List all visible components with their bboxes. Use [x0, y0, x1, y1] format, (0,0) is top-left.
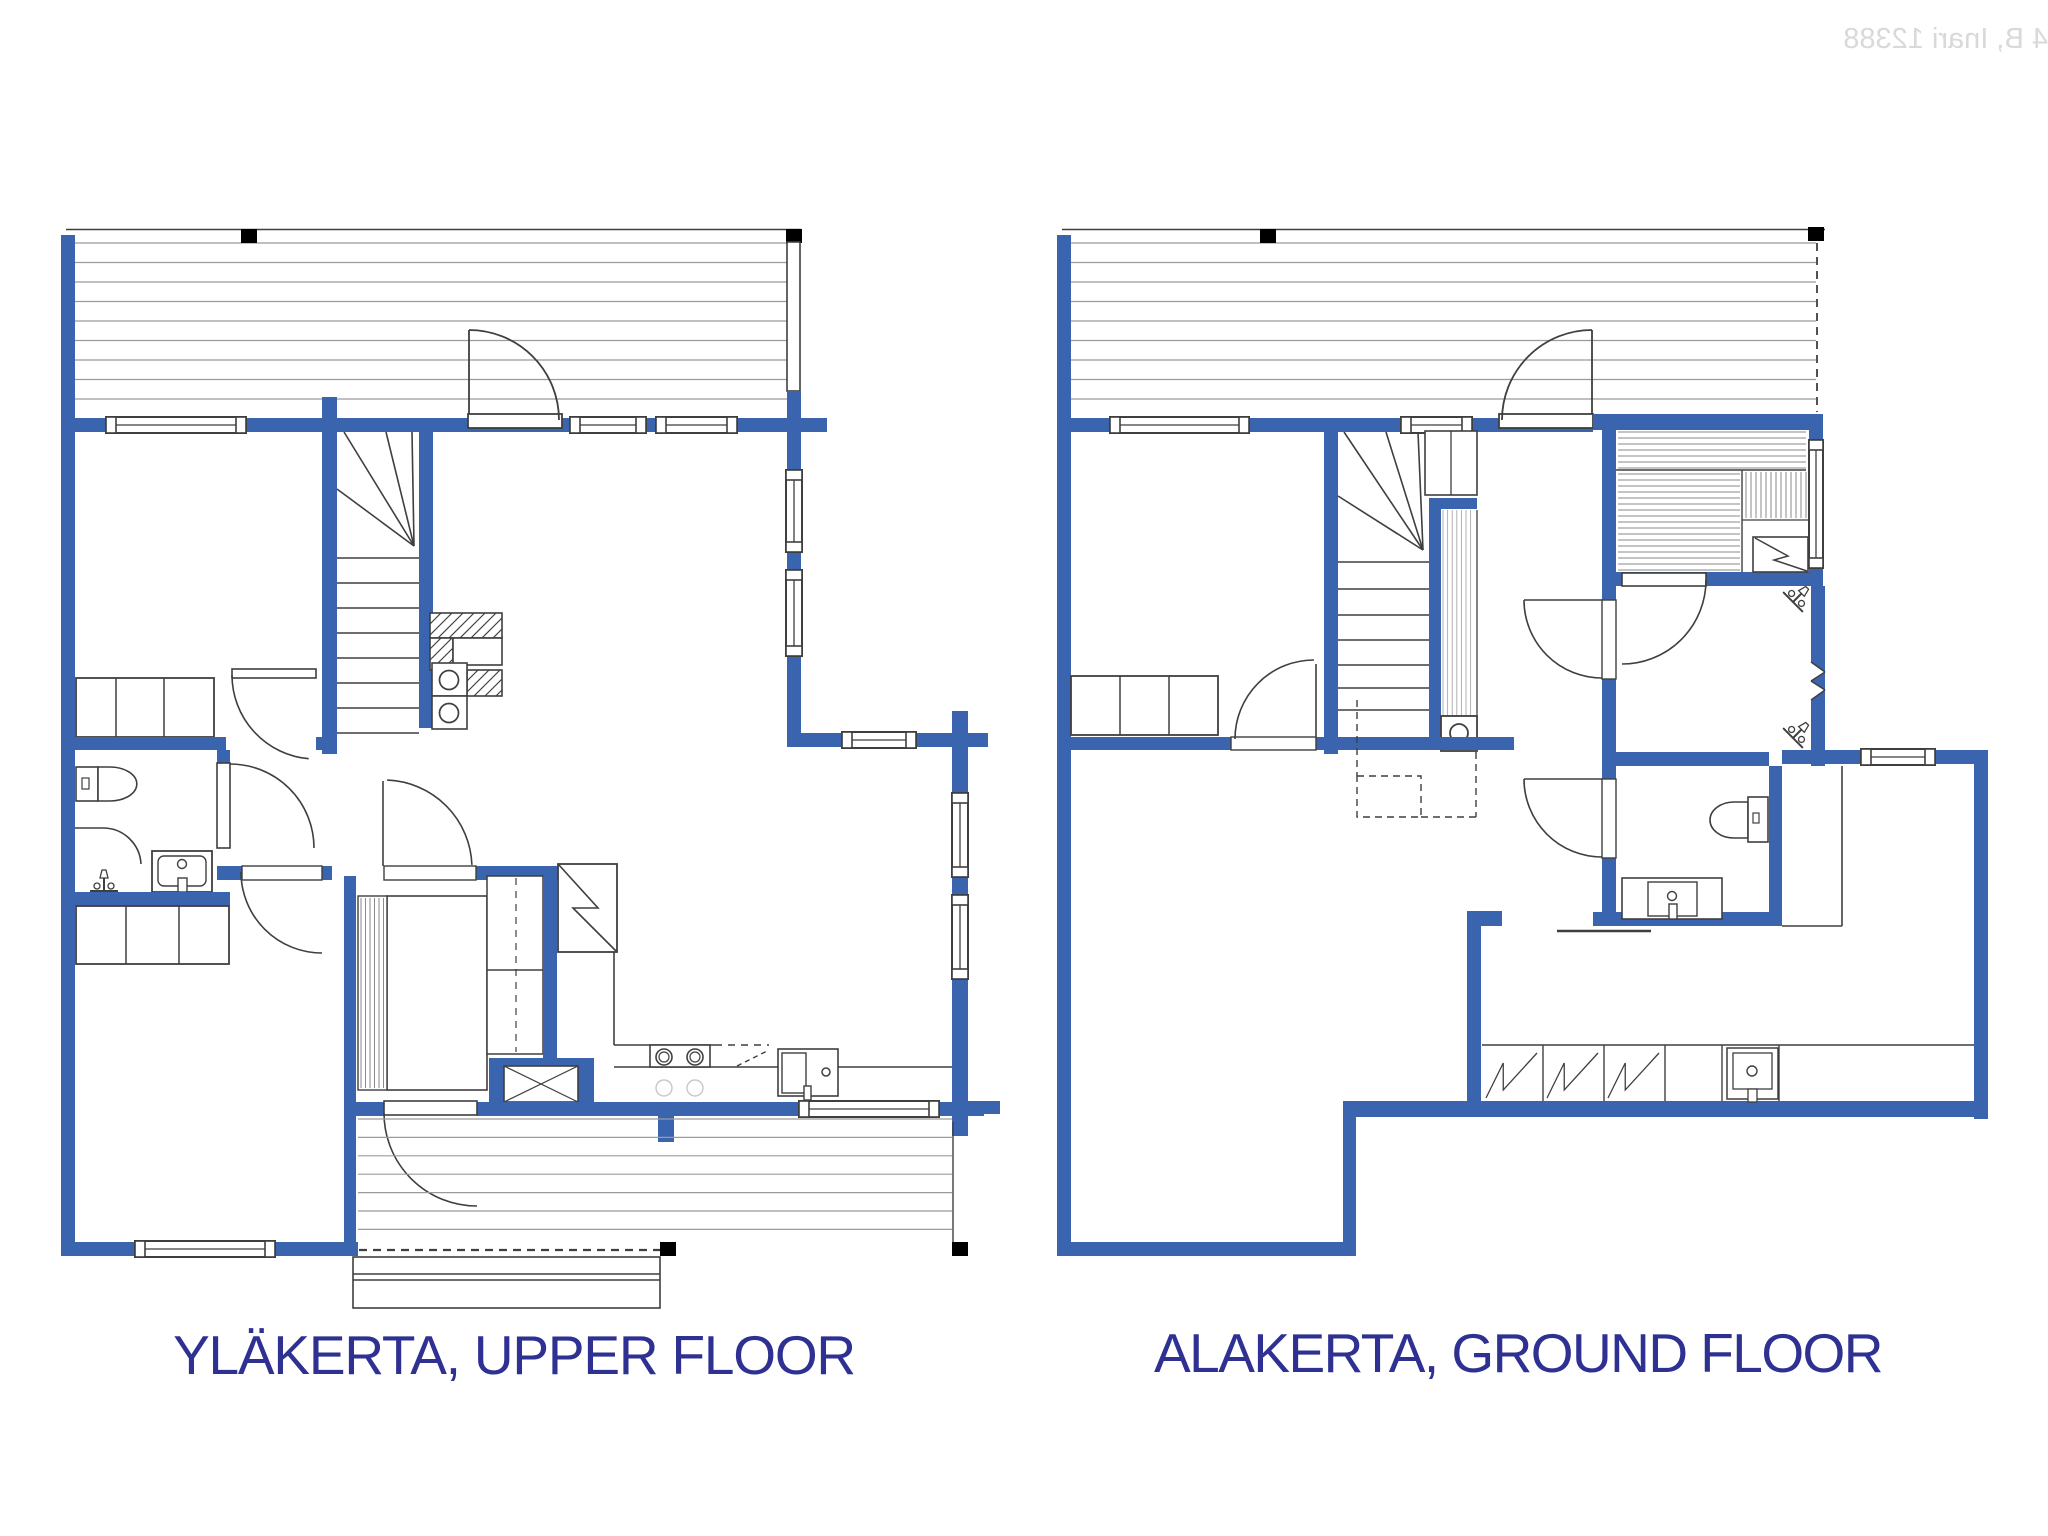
svg-text:4 B, Inari 12388: 4 B, Inari 12388	[1843, 23, 2048, 55]
svg-text:YLÄKERTA, UPPER FLOOR: YLÄKERTA, UPPER FLOOR	[173, 1324, 855, 1386]
svg-text:ALAKERTA, GROUND FLOOR: ALAKERTA, GROUND FLOOR	[1154, 1322, 1882, 1384]
